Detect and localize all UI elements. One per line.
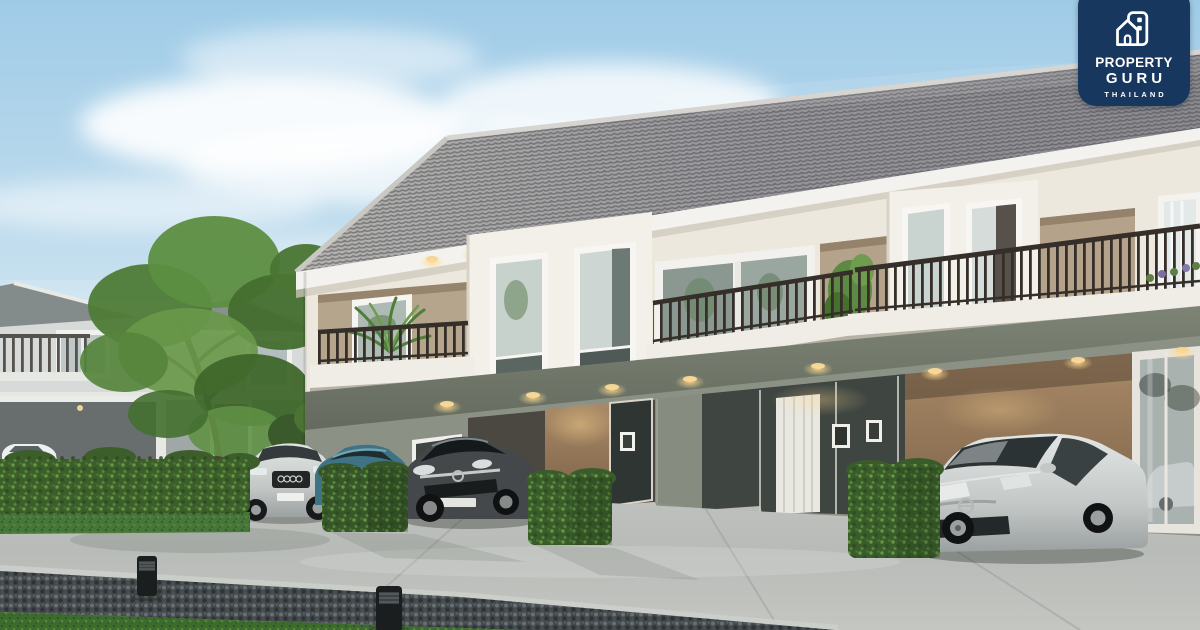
brand-line-1: PROPERTY <box>1095 55 1172 70</box>
headlight <box>250 468 267 475</box>
pillar <box>655 394 702 508</box>
scene-rendering <box>0 0 1200 630</box>
framed-picture <box>832 424 850 448</box>
side-mirror <box>1040 463 1056 473</box>
propertyguru-badge: PROPERTY GURU THAILAND <box>1078 0 1190 106</box>
hedge-4 <box>846 458 944 558</box>
hedge-mid <box>318 461 410 532</box>
hedge-left-long <box>0 447 260 534</box>
license-plate <box>440 498 476 507</box>
brand-line-3: THAILAND <box>1101 90 1166 99</box>
framed-picture <box>866 420 882 442</box>
hero-image: PROPERTY GURU THAILAND <box>0 0 1200 630</box>
brand-line-2: GURU <box>1102 70 1166 87</box>
glass-door <box>610 399 652 506</box>
house-building-icon <box>1111 8 1157 52</box>
license-plate <box>277 493 304 501</box>
hedge-3 <box>526 468 616 545</box>
